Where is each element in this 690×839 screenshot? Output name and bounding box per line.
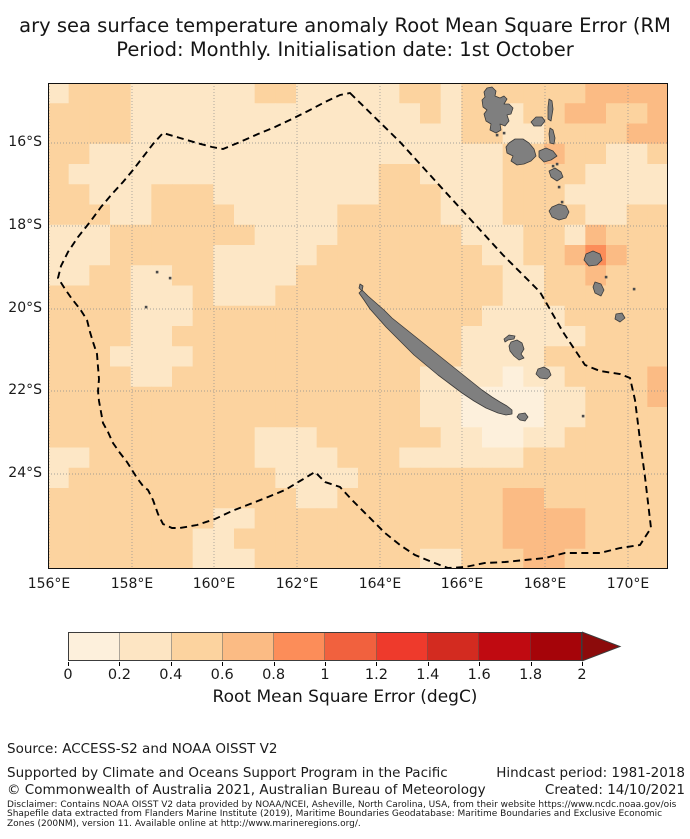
rmse-cell	[69, 164, 90, 185]
rmse-cell	[69, 326, 90, 347]
rmse-cell	[317, 205, 338, 226]
rmse-cell	[482, 265, 503, 286]
rmse-cell	[585, 103, 606, 124]
rmse-cell	[89, 124, 110, 145]
rmse-cell	[110, 346, 131, 367]
rmse-cell	[296, 387, 317, 408]
rmse-cell	[606, 407, 627, 428]
rmse-cell	[379, 346, 400, 367]
rmse-cell	[647, 549, 668, 569]
rmse-cell	[544, 103, 565, 124]
rmse-cell	[503, 488, 524, 509]
rmse-cell	[627, 286, 648, 307]
rmse-cell	[482, 346, 503, 367]
rmse-cell	[441, 508, 462, 529]
rmse-cell	[358, 184, 379, 205]
rmse-cell	[131, 427, 152, 448]
rmse-cell	[585, 164, 606, 185]
rmse-cell	[441, 488, 462, 509]
rmse-cell	[544, 245, 565, 266]
rmse-cell	[317, 508, 338, 529]
rmse-cell	[482, 468, 503, 489]
rmse-cell	[420, 205, 441, 226]
rmse-cell	[337, 448, 358, 469]
rmse-cell	[503, 367, 524, 388]
rmse-cell	[441, 144, 462, 165]
rmse-cell	[337, 103, 358, 124]
rmse-cell	[606, 549, 627, 569]
rmse-cell	[399, 225, 420, 246]
colorbar-tick-mark	[68, 662, 69, 666]
rmse-cell	[89, 164, 110, 185]
rmse-cell	[647, 184, 668, 205]
rmse-cell	[234, 184, 255, 205]
rmse-cell	[627, 83, 648, 104]
islet-dot	[496, 134, 499, 137]
rmse-cell	[585, 346, 606, 367]
rmse-cell	[399, 103, 420, 124]
rmse-cell	[585, 488, 606, 509]
rmse-cell	[89, 367, 110, 388]
colorbar-segment	[223, 633, 274, 660]
rmse-cell	[89, 448, 110, 469]
rmse-cell	[172, 367, 193, 388]
rmse-cell	[48, 346, 69, 367]
rmse-cell	[503, 205, 524, 226]
rmse-cell	[627, 488, 648, 509]
rmse-cell	[69, 103, 90, 124]
colorbar-tick-mark	[582, 662, 583, 666]
rmse-cell	[441, 529, 462, 550]
rmse-cell	[337, 265, 358, 286]
figure-title-line2: Period: Monthly. Initialisation date: 1s…	[116, 38, 574, 61]
rmse-cell	[193, 164, 214, 185]
islet-dot	[633, 288, 636, 291]
rmse-cell	[585, 468, 606, 489]
rmse-cell	[565, 184, 586, 205]
rmse-cell	[172, 529, 193, 550]
latitude-tick-label: 16°S	[0, 134, 42, 150]
rmse-cell	[89, 468, 110, 489]
islet-dot	[561, 201, 564, 204]
rmse-cell	[358, 83, 379, 104]
rmse-cell	[337, 225, 358, 246]
rmse-cell	[275, 427, 296, 448]
rmse-cell	[482, 549, 503, 569]
rmse-cell	[565, 326, 586, 347]
rmse-cell	[606, 367, 627, 388]
rmse-cell	[151, 468, 172, 489]
rmse-cell	[296, 205, 317, 226]
rmse-cell	[523, 387, 544, 408]
rmse-cell	[317, 549, 338, 569]
rmse-cell	[275, 225, 296, 246]
rmse-cell	[213, 326, 234, 347]
map-plot	[48, 83, 668, 569]
rmse-cell	[544, 468, 565, 489]
longitude-tick-label: 158°E	[97, 576, 167, 592]
rmse-cell	[255, 448, 276, 469]
rmse-cell	[358, 407, 379, 428]
disclaimer-text: Disclaimer: Contains NOAA OISST V2 data …	[7, 801, 676, 829]
rmse-cell	[110, 508, 131, 529]
rmse-cell	[441, 225, 462, 246]
rmse-cell	[110, 286, 131, 307]
rmse-cell	[89, 529, 110, 550]
rmse-cell	[565, 286, 586, 307]
rmse-cell	[110, 184, 131, 205]
rmse-cell	[172, 326, 193, 347]
rmse-cell	[213, 83, 234, 104]
created-date-text: Created: 14/10/2021	[545, 782, 685, 798]
colorbar-tick-label: 0.8	[249, 667, 299, 683]
rmse-cell	[585, 205, 606, 226]
rmse-cell	[337, 286, 358, 307]
rmse-cell	[69, 346, 90, 367]
rmse-cell	[544, 83, 565, 104]
rmse-cell	[627, 326, 648, 347]
rmse-cell	[110, 529, 131, 550]
rmse-cell	[234, 144, 255, 165]
rmse-cell	[275, 387, 296, 408]
rmse-cell	[317, 427, 338, 448]
rmse-cell	[172, 346, 193, 367]
colorbar-segment	[377, 633, 428, 660]
rmse-cell	[544, 549, 565, 569]
rmse-cell	[606, 529, 627, 550]
latitude-tick-label: 24°S	[0, 465, 42, 481]
rmse-cell	[234, 326, 255, 347]
rmse-cell	[296, 124, 317, 145]
rmse-cell	[544, 265, 565, 286]
rmse-cell	[399, 468, 420, 489]
rmse-cell	[110, 225, 131, 246]
latitude-tick-label: 18°S	[0, 217, 42, 233]
rmse-cell	[461, 326, 482, 347]
rmse-cell	[255, 529, 276, 550]
rmse-cell	[379, 488, 400, 509]
rmse-cell	[255, 306, 276, 327]
rmse-cell	[627, 124, 648, 145]
rmse-cell	[606, 448, 627, 469]
colorbar-tick-mark	[428, 662, 429, 666]
rmse-cell	[69, 488, 90, 509]
rmse-cell	[358, 164, 379, 185]
rmse-cell	[255, 225, 276, 246]
rmse-cell	[503, 245, 524, 266]
rmse-cell	[544, 225, 565, 246]
rmse-cell	[585, 549, 606, 569]
rmse-cell	[213, 225, 234, 246]
rmse-cell	[627, 225, 648, 246]
rmse-cell	[420, 245, 441, 266]
rmse-cell	[565, 448, 586, 469]
rmse-cell	[358, 448, 379, 469]
rmse-cell	[131, 367, 152, 388]
rmse-cell	[255, 144, 276, 165]
rmse-cell	[585, 448, 606, 469]
rmse-cell	[275, 83, 296, 104]
rmse-cell	[523, 306, 544, 327]
rmse-cell	[606, 124, 627, 145]
rmse-cell	[503, 468, 524, 489]
rmse-cell	[151, 245, 172, 266]
longitude-tick-label: 170°E	[593, 576, 663, 592]
rmse-cell	[647, 144, 668, 165]
rmse-cell	[275, 549, 296, 569]
rmse-cell	[461, 488, 482, 509]
rmse-cell	[482, 367, 503, 388]
rmse-cell	[647, 164, 668, 185]
rmse-cell	[89, 265, 110, 286]
rmse-cell	[399, 265, 420, 286]
rmse-cell	[647, 427, 668, 448]
rmse-cell	[48, 144, 69, 165]
rmse-cell	[379, 124, 400, 145]
colorbar-axis-label: Root Mean Square Error (degC)	[0, 687, 690, 707]
colorbar-segment	[531, 633, 581, 660]
rmse-cell	[399, 387, 420, 408]
islet-dot	[605, 276, 608, 279]
disclaimer-line-3: Zones (200NM), version 11. Available onl…	[7, 820, 676, 829]
rmse-cell	[461, 144, 482, 165]
rmse-cell	[358, 346, 379, 367]
rmse-cell	[172, 508, 193, 529]
rmse-cell	[255, 103, 276, 124]
rmse-cell	[234, 448, 255, 469]
rmse-cell	[193, 468, 214, 489]
rmse-cell	[317, 326, 338, 347]
rmse-cell	[296, 144, 317, 165]
rmse-cell	[565, 468, 586, 489]
rmse-cell	[69, 124, 90, 145]
rmse-cell	[234, 407, 255, 428]
rmse-cell	[358, 367, 379, 388]
colorbar-segment	[325, 633, 376, 660]
rmse-cell	[255, 468, 276, 489]
longitude-tick-label: 156°E	[14, 576, 84, 592]
rmse-cell	[523, 184, 544, 205]
rmse-cell	[151, 326, 172, 347]
rmse-cell	[131, 184, 152, 205]
rmse-cell	[585, 508, 606, 529]
rmse-cell	[131, 103, 152, 124]
rmse-cell	[358, 205, 379, 226]
rmse-cell	[48, 407, 69, 428]
rmse-cell	[647, 488, 668, 509]
rmse-cell	[544, 326, 565, 347]
rmse-cell	[213, 387, 234, 408]
rmse-cell	[151, 488, 172, 509]
rmse-cell	[193, 326, 214, 347]
rmse-cell	[48, 124, 69, 145]
rmse-cell	[379, 427, 400, 448]
rmse-cell	[358, 103, 379, 124]
rmse-cell	[503, 265, 524, 286]
rmse-cell	[358, 427, 379, 448]
rmse-cell	[296, 448, 317, 469]
colorbar-tick-label: 0	[43, 667, 93, 683]
rmse-cell	[151, 549, 172, 569]
rmse-cell	[131, 164, 152, 185]
rmse-cell	[627, 245, 648, 266]
rmse-cell	[89, 103, 110, 124]
rmse-cell	[110, 407, 131, 428]
rmse-cell	[503, 508, 524, 529]
rmse-cell	[482, 144, 503, 165]
rmse-cell	[565, 508, 586, 529]
rmse-cell	[69, 427, 90, 448]
longitude-tick-label: 162°E	[262, 576, 332, 592]
rmse-cell	[255, 407, 276, 428]
rmse-cell	[565, 245, 586, 266]
rmse-cell	[647, 225, 668, 246]
rmse-cell	[213, 468, 234, 489]
rmse-cell	[213, 549, 234, 569]
rmse-cell	[337, 508, 358, 529]
rmse-cell	[151, 529, 172, 550]
rmse-cell	[48, 468, 69, 489]
rmse-cell	[399, 488, 420, 509]
rmse-cell	[420, 286, 441, 307]
rmse-cell	[358, 144, 379, 165]
rmse-cell	[234, 83, 255, 104]
rmse-cell	[461, 427, 482, 448]
rmse-cell	[193, 427, 214, 448]
rmse-cell	[379, 468, 400, 489]
rmse-cell	[585, 407, 606, 428]
rmse-cell	[358, 387, 379, 408]
rmse-cell	[585, 427, 606, 448]
rmse-cell	[441, 448, 462, 469]
rmse-cell	[420, 83, 441, 104]
rmse-cell	[89, 407, 110, 428]
rmse-cell	[503, 286, 524, 307]
rmse-cell	[420, 265, 441, 286]
rmse-cell	[565, 164, 586, 185]
rmse-cell	[585, 124, 606, 145]
rmse-cell	[441, 205, 462, 226]
rmse-cell	[647, 448, 668, 469]
rmse-cell	[565, 346, 586, 367]
rmse-cell	[337, 468, 358, 489]
rmse-cell	[606, 103, 627, 124]
rmse-cell	[523, 448, 544, 469]
rmse-cell	[461, 83, 482, 104]
rmse-cell	[110, 83, 131, 104]
rmse-cell	[647, 387, 668, 408]
rmse-cell	[172, 407, 193, 428]
rmse-cell	[296, 225, 317, 246]
rmse-cell	[89, 144, 110, 165]
map-canvas	[48, 83, 668, 569]
rmse-cell	[213, 124, 234, 145]
rmse-cell	[151, 346, 172, 367]
rmse-cell	[317, 286, 338, 307]
rmse-cell	[151, 225, 172, 246]
rmse-cell	[647, 367, 668, 388]
rmse-cell	[337, 245, 358, 266]
rmse-cell	[193, 367, 214, 388]
rmse-cell	[131, 83, 152, 104]
rmse-cell	[441, 427, 462, 448]
rmse-cell	[296, 164, 317, 185]
rmse-cell	[606, 205, 627, 226]
rmse-cell	[131, 407, 152, 428]
rmse-cell	[503, 225, 524, 246]
rmse-cell	[89, 488, 110, 509]
rmse-cell	[296, 549, 317, 569]
rmse-cell	[110, 326, 131, 347]
rmse-cell	[213, 448, 234, 469]
colorbar-tick-mark	[325, 662, 326, 666]
rmse-cell	[606, 225, 627, 246]
rmse-cell	[441, 124, 462, 145]
source-text: Source: ACCESS-S2 and NOAA OISST V2	[7, 741, 277, 757]
rmse-cell	[213, 346, 234, 367]
rmse-cell	[627, 184, 648, 205]
rmse-cell	[275, 124, 296, 145]
rmse-cell	[544, 529, 565, 550]
colorbar-tick-mark	[171, 662, 172, 666]
rmse-cell	[399, 529, 420, 550]
rmse-cell	[482, 245, 503, 266]
rmse-cell	[565, 124, 586, 145]
colorbar-tick-mark	[222, 662, 223, 666]
rmse-cell	[110, 367, 131, 388]
rmse-cell	[503, 529, 524, 550]
rmse-cell	[523, 326, 544, 347]
rmse-cell	[296, 529, 317, 550]
rmse-cell	[234, 508, 255, 529]
rmse-cell	[255, 326, 276, 347]
rmse-cell	[213, 205, 234, 226]
rmse-cell	[358, 245, 379, 266]
rmse-cell	[420, 407, 441, 428]
rmse-cell	[255, 205, 276, 226]
islet-dot	[556, 163, 559, 166]
rmse-cell	[193, 549, 214, 569]
rmse-cell	[172, 205, 193, 226]
rmse-cell	[337, 367, 358, 388]
rmse-cell	[317, 124, 338, 145]
rmse-cell	[213, 164, 234, 185]
rmse-cell	[337, 488, 358, 509]
rmse-cell	[151, 306, 172, 327]
rmse-cell	[48, 103, 69, 124]
rmse-cell	[317, 144, 338, 165]
rmse-cell	[275, 407, 296, 428]
rmse-cell	[234, 225, 255, 246]
rmse-cell	[48, 326, 69, 347]
rmse-cell	[337, 346, 358, 367]
rmse-cell	[337, 164, 358, 185]
rmse-cell	[255, 286, 276, 307]
rmse-cell	[151, 427, 172, 448]
rmse-cell	[647, 124, 668, 145]
rmse-cell	[317, 529, 338, 550]
rmse-cell	[69, 529, 90, 550]
rmse-cell	[317, 367, 338, 388]
islet-dot	[582, 415, 585, 418]
rmse-cell	[317, 346, 338, 367]
rmse-cell	[482, 488, 503, 509]
rmse-cell	[296, 265, 317, 286]
rmse-cell	[627, 265, 648, 286]
rmse-cell	[255, 184, 276, 205]
rmse-cell	[379, 205, 400, 226]
rmse-cell	[379, 164, 400, 185]
